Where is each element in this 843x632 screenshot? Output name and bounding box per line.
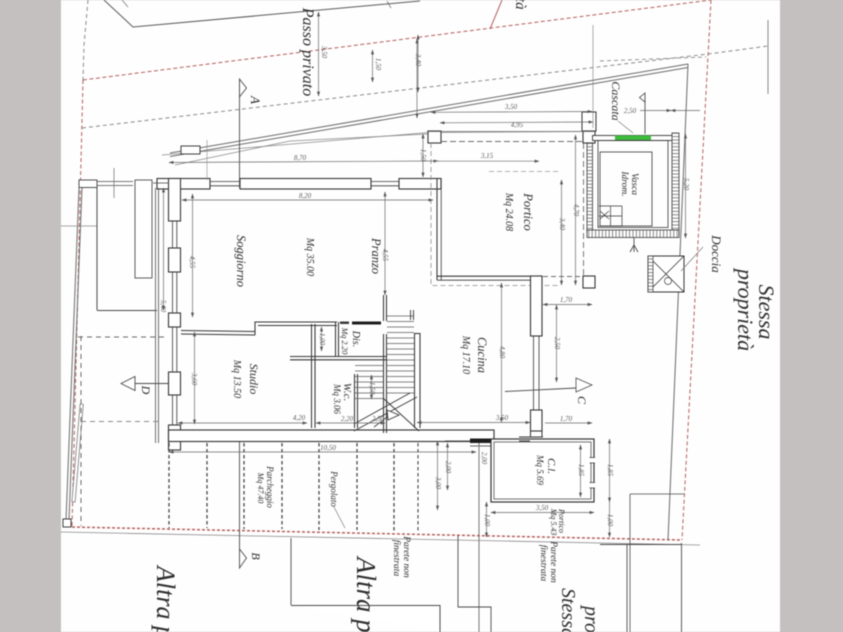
svg-text:3,40: 3,40 — [414, 53, 422, 67]
svg-text:1,50: 1,50 — [419, 149, 427, 162]
svg-text:2,00: 2,00 — [480, 452, 488, 465]
svg-text:2,00: 2,00 — [444, 461, 452, 474]
svg-text:Mq 5.69: Mq 5.69 — [535, 454, 545, 485]
svg-text:Mq 13.50: Mq 13.50 — [231, 359, 242, 398]
svg-text:Idrom.: Idrom. — [619, 170, 629, 196]
svg-text:3,60: 3,60 — [190, 372, 198, 386]
svg-text:2,50: 2,50 — [372, 415, 385, 423]
svg-text:8,20: 8,20 — [299, 192, 312, 200]
svg-text:10,50: 10,50 — [320, 444, 336, 452]
svg-text:Passo privato: Passo privato — [299, 7, 316, 96]
svg-text:2,50: 2,50 — [553, 337, 561, 350]
svg-text:1,00: 1,00 — [483, 514, 491, 527]
svg-text:2,20: 2,20 — [341, 415, 354, 423]
svg-text:4,20: 4,20 — [293, 414, 306, 422]
svg-text:Altra proprietà: Altra proprietà — [351, 555, 381, 632]
svg-text:tà: tà — [512, 0, 528, 10]
svg-text:Portico: Portico — [521, 192, 535, 231]
svg-text:1,00: 1,00 — [606, 514, 614, 527]
svg-text:Altra proprietà: Altra proprietà — [151, 564, 180, 632]
svg-text:Mq 5.43: Mq 5.43 — [549, 508, 558, 536]
svg-text:2,50: 2,50 — [624, 107, 637, 115]
svg-text:Parete non: Parete non — [401, 535, 411, 578]
svg-text:3,15: 3,15 — [480, 152, 494, 160]
svg-text:3,40: 3,40 — [558, 217, 566, 231]
svg-text:4,80: 4,80 — [498, 346, 506, 359]
svg-text:3,50: 3,50 — [535, 504, 549, 512]
svg-text:Mq 47.40: Mq 47.40 — [256, 472, 265, 504]
svg-text:Mq 3.06: Mq 3.06 — [332, 383, 342, 414]
svg-text:4,95: 4,95 — [511, 121, 524, 129]
svg-text:1,50: 1,50 — [374, 58, 382, 71]
svg-text:Cucina: Cucina — [475, 337, 489, 373]
svg-text:A: A — [248, 95, 263, 104]
svg-text:1,70: 1,70 — [560, 415, 573, 423]
svg-text:C: C — [575, 396, 589, 405]
svg-text:1,85: 1,85 — [606, 464, 614, 477]
svg-text:3,50: 3,50 — [320, 45, 328, 59]
svg-text:C.l.: C.l. — [545, 458, 557, 474]
svg-text:1,50: 1,50 — [368, 382, 376, 395]
svg-text:Doccia: Doccia — [709, 234, 724, 273]
svg-text:1,85: 1,85 — [577, 464, 585, 477]
svg-text:Stessa: Stessa — [557, 588, 579, 632]
svg-text:5,20: 5,20 — [682, 178, 690, 191]
svg-text:4,55: 4,55 — [188, 256, 196, 269]
svg-text:D: D — [139, 385, 153, 395]
svg-text:Parcheggio: Parcheggio — [265, 465, 275, 508]
svg-text:3,50: 3,50 — [495, 414, 509, 422]
svg-text:4,70: 4,70 — [572, 204, 580, 217]
svg-text:proprietà: proprietà — [733, 267, 758, 351]
svg-text:Studio: Studio — [247, 364, 261, 395]
svg-text:Mq 2.20: Mq 2.20 — [340, 327, 349, 355]
svg-text:Pranzo: Pranzo — [369, 237, 383, 274]
svg-text:5,40: 5,40 — [159, 300, 167, 313]
svg-text:3,00: 3,00 — [434, 476, 442, 490]
svg-text:Mq 17.10: Mq 17.10 — [460, 335, 471, 374]
svg-text:Cascata: Cascata — [609, 81, 623, 120]
svg-text:Mq 24.08: Mq 24.08 — [503, 192, 514, 231]
svg-text:4,55: 4,55 — [381, 249, 389, 262]
svg-text:proprietà: proprietà — [580, 604, 602, 632]
svg-text:B: B — [249, 552, 263, 560]
svg-text:finestrata: finestrata — [391, 540, 402, 577]
svg-text:Pergolato: Pergolato — [329, 470, 339, 507]
svg-text:8,70: 8,70 — [294, 154, 307, 162]
svg-text:1,70: 1,70 — [560, 296, 573, 304]
svg-text:Parete non: Parete non — [548, 540, 558, 583]
svg-text:3,50: 3,50 — [504, 103, 518, 111]
svg-text:Vasca: Vasca — [629, 173, 639, 195]
svg-text:finestrata: finestrata — [538, 545, 549, 582]
svg-text:Dis.: Dis. — [350, 330, 361, 347]
svg-text:1,00: 1,00 — [318, 333, 326, 346]
svg-text:Soggiorno: Soggiorno — [234, 235, 248, 287]
svg-text:Mq 35.00: Mq 35.00 — [304, 237, 315, 276]
